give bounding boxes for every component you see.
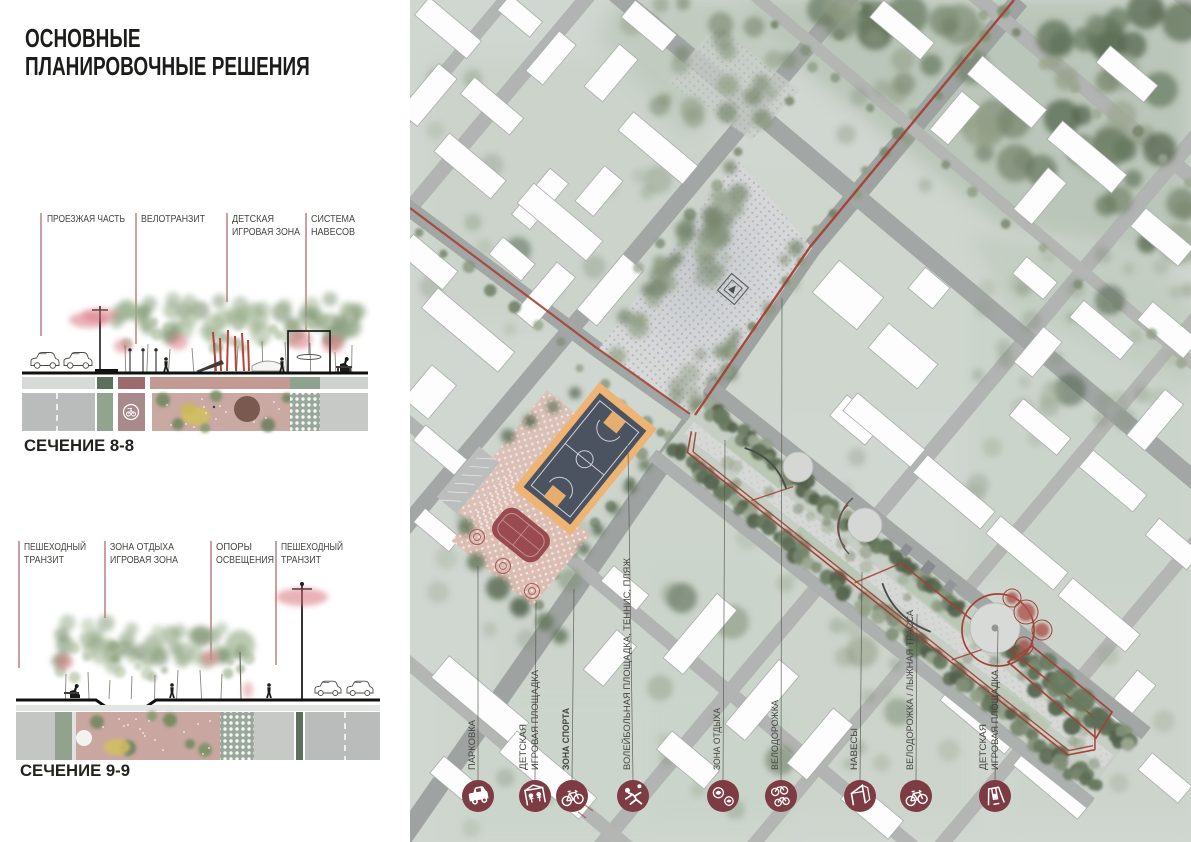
svg-text:ПЕШЕХОДНЫЙ: ПЕШЕХОДНЫЙ	[24, 540, 86, 553]
svg-text:НАВЕСОВ: НАВЕСОВ	[311, 227, 355, 238]
svg-text:ВЕЛОДОРОЖКА / ЛЫЖНАЯ ТРАССА: ВЕЛОДОРОЖКА / ЛЫЖНАЯ ТРАССА	[905, 609, 916, 770]
svg-text:ОПОРЫ: ОПОРЫ	[216, 542, 252, 553]
svg-text:ВЕЛОТРАНЗИТ: ВЕЛОТРАНЗИТ	[141, 214, 205, 225]
svg-text:ТРАНЗИТ: ТРАНЗИТ	[281, 555, 321, 566]
svg-text:ВЕЛОДОРОЖКА: ВЕЛОДОРОЖКА	[770, 699, 781, 770]
svg-text:ЗОНА СПОРТА: ЗОНА СПОРТА	[561, 708, 572, 770]
svg-text:ПАРКОВКА: ПАРКОВКА	[467, 719, 478, 770]
svg-text:НАВЕСЫ: НАВЕСЫ	[849, 728, 860, 770]
svg-text:ПЕШЕХОДНЫЙ: ПЕШЕХОДНЫЙ	[281, 540, 343, 553]
svg-text:ДЕТСКАЯ: ДЕТСКАЯ	[232, 214, 274, 225]
svg-text:ИГРОВАЯ ПЛОЩАДКА: ИГРОВАЯ ПЛОЩАДКА	[530, 669, 541, 770]
svg-text:ИГРОВАЯ ПЛОЩАДКА: ИГРОВАЯ ПЛОЩАДКА	[990, 669, 1001, 770]
svg-text:ПРОЕЗЖАЯ ЧАСТЬ: ПРОЕЗЖАЯ ЧАСТЬ	[47, 214, 125, 225]
svg-text:СЕЧЕНИЕ 9-9: СЕЧЕНИЕ 9-9	[20, 761, 130, 780]
svg-text:ИГРОВАЯ ЗОНА: ИГРОВАЯ ЗОНА	[110, 555, 178, 566]
svg-text:ЗОНА ОТДЫХА: ЗОНА ОТДЫХА	[110, 542, 174, 553]
svg-text:СЕЧЕНИЕ 8-8: СЕЧЕНИЕ 8-8	[24, 436, 134, 455]
svg-text:ВОЛЕЙБОЛЬНАЯ ПЛОЩАДКА, ТЕННИС,: ВОЛЕЙБОЛЬНАЯ ПЛОЩАДКА, ТЕННИС, ПЛЯЖ	[621, 558, 633, 770]
svg-text:ДЕТСКАЯ: ДЕТСКАЯ	[518, 724, 529, 770]
svg-text:СИСТЕМА: СИСТЕМА	[311, 214, 355, 225]
svg-text:ЗОНА ОТДЫХА: ЗОНА ОТДЫХА	[712, 707, 723, 770]
svg-text:ТРАНЗИТ: ТРАНЗИТ	[24, 555, 64, 566]
svg-text:ДЕТСКАЯ: ДЕТСКАЯ	[978, 724, 989, 770]
svg-text:ИГРОВАЯ ЗОНА: ИГРОВАЯ ЗОНА	[232, 227, 300, 238]
svg-text:ОСВЕЩЕНИЯ: ОСВЕЩЕНИЯ	[216, 555, 274, 566]
